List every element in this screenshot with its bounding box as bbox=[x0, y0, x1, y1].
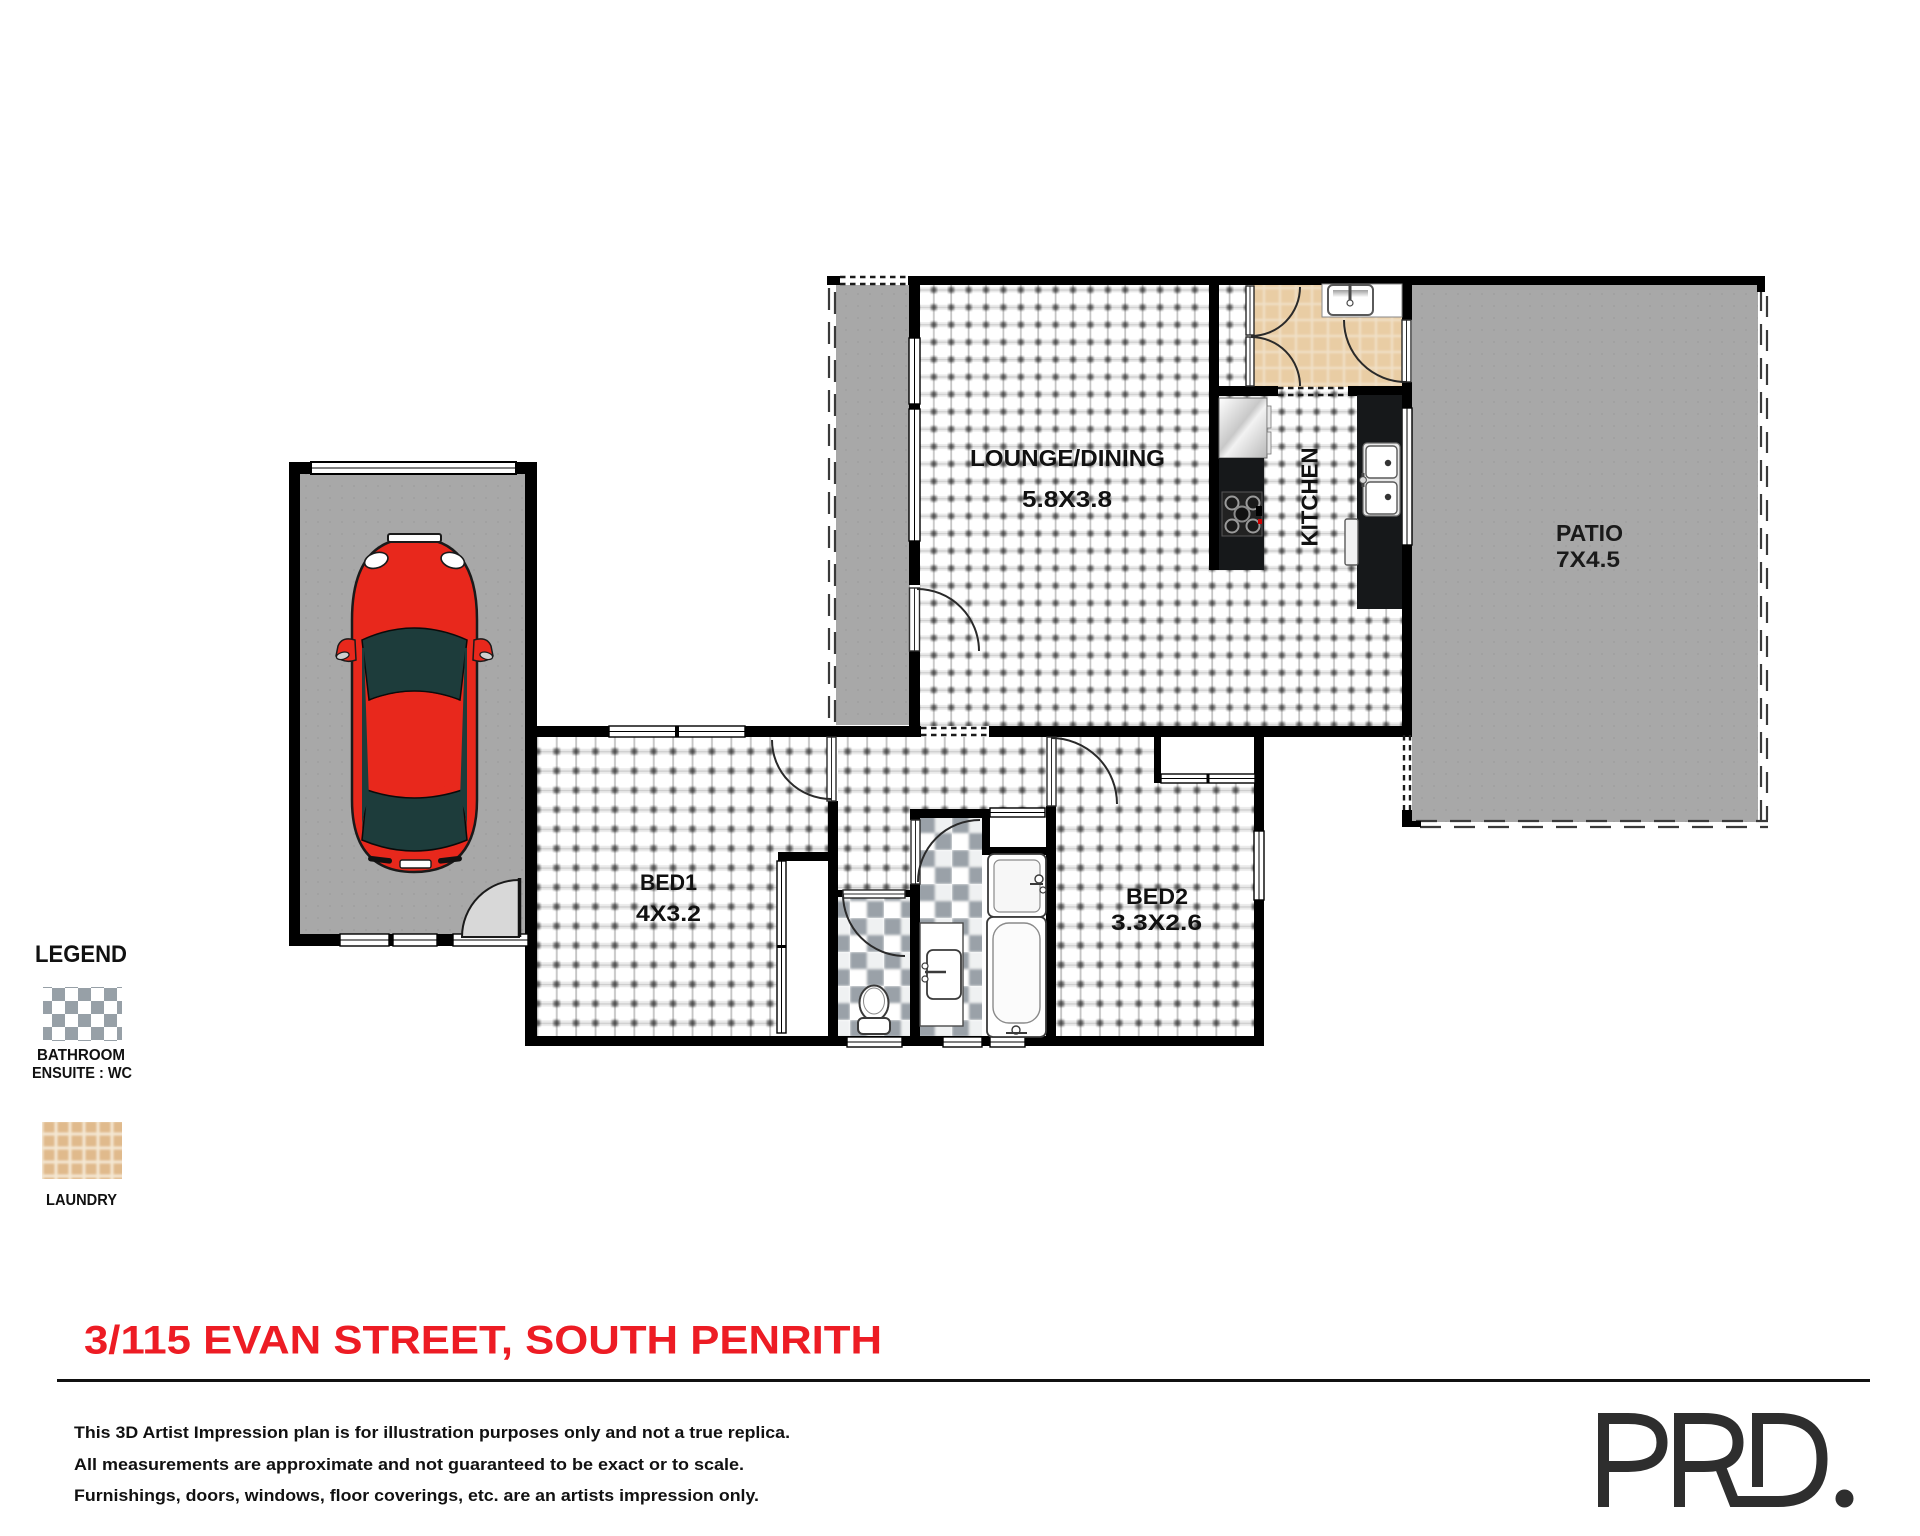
svg-text:3/115 EVAN STREET, SOUTH PENRI: 3/115 EVAN STREET, SOUTH PENRITH bbox=[84, 1319, 882, 1363]
svg-text:LEGEND: LEGEND bbox=[35, 941, 127, 968]
svg-text:4X3.2: 4X3.2 bbox=[636, 901, 701, 926]
svg-text:5.8X3.8: 5.8X3.8 bbox=[1022, 486, 1112, 512]
svg-text:This 3D Artist Impression plan: This 3D Artist Impression plan is for il… bbox=[74, 1423, 790, 1442]
svg-text:LAUNDRY: LAUNDRY bbox=[46, 1192, 117, 1209]
svg-text:7X4.5: 7X4.5 bbox=[1556, 547, 1620, 572]
svg-text:BATHROOM: BATHROOM bbox=[37, 1047, 125, 1064]
svg-text:LOUNGE/DINING: LOUNGE/DINING bbox=[970, 445, 1165, 471]
svg-text:Furnishings, doors, windows, f: Furnishings, doors, windows, floor cover… bbox=[74, 1486, 759, 1505]
svg-text:3.3X2.6: 3.3X2.6 bbox=[1111, 910, 1202, 935]
svg-text:ENSUITE : WC: ENSUITE : WC bbox=[32, 1065, 132, 1082]
svg-text:BED2: BED2 bbox=[1126, 884, 1188, 909]
svg-text:PATIO: PATIO bbox=[1556, 520, 1623, 546]
svg-text:KITCHEN: KITCHEN bbox=[1297, 448, 1323, 547]
svg-text:All measurements are approxima: All measurements are approximate and not… bbox=[74, 1455, 744, 1474]
svg-text:BED1: BED1 bbox=[640, 870, 697, 895]
